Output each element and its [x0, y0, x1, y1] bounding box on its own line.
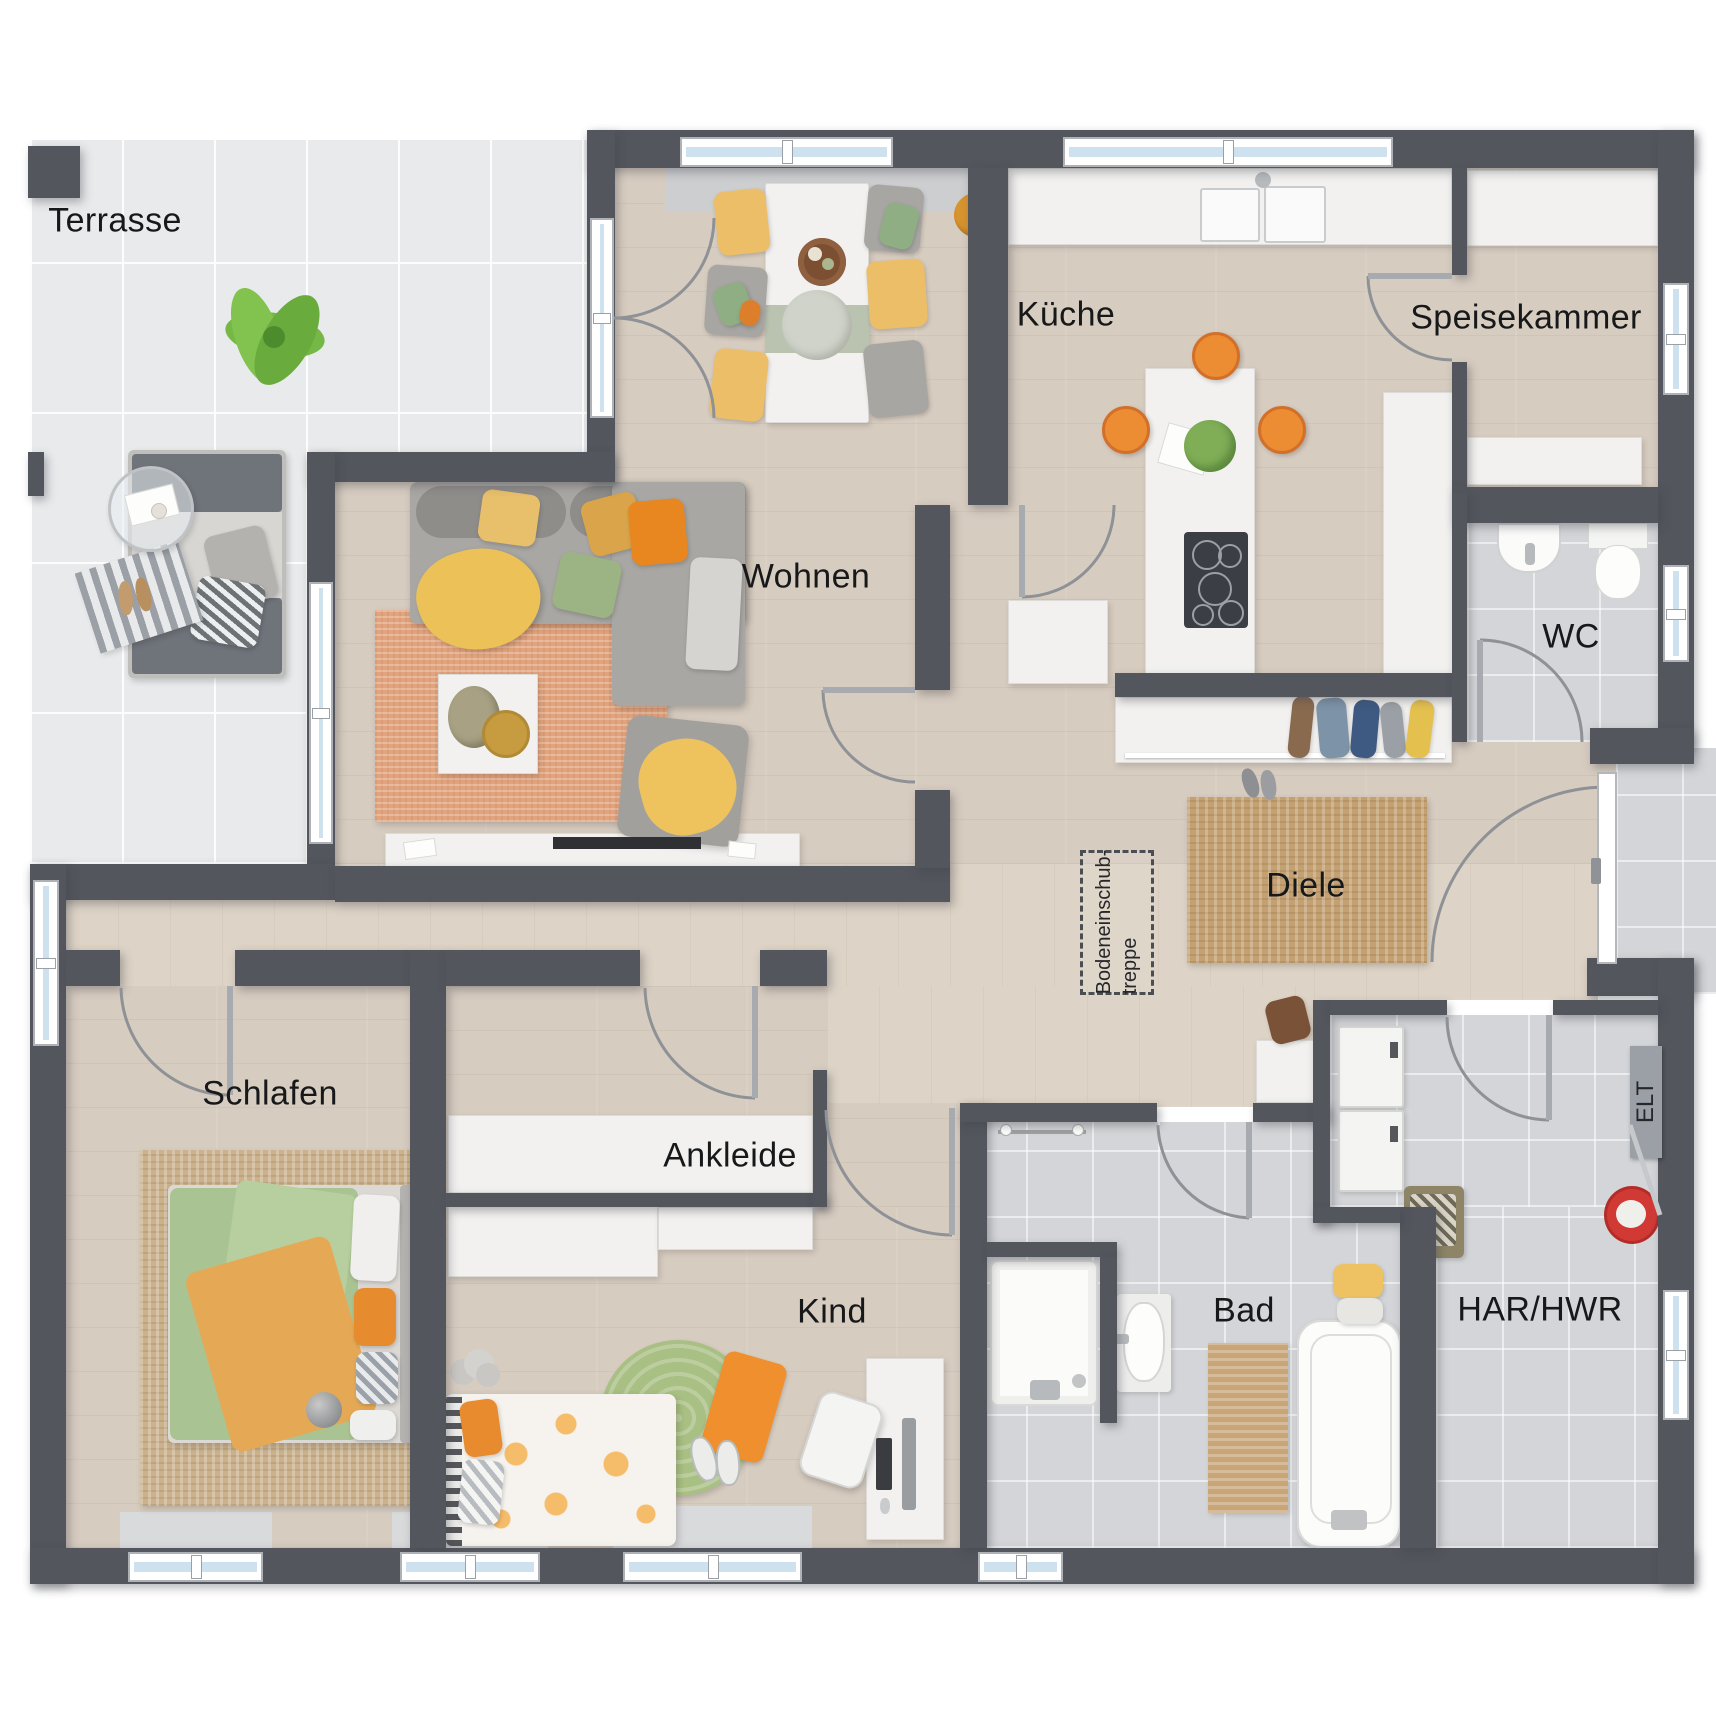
room-label-wc: WC	[1542, 618, 1599, 657]
window	[1663, 283, 1689, 395]
room-label-schlafen: Schlafen	[202, 1075, 338, 1114]
room-label-diele: Diele	[1266, 867, 1345, 906]
window	[680, 137, 893, 167]
room-label-elt: ELT	[1632, 1081, 1660, 1123]
window	[1063, 137, 1393, 167]
floor-plan: Terrasse Küche Speisekammer WC Wohnen Di…	[0, 0, 1716, 1716]
room-label-kueche: Küche	[1017, 296, 1115, 335]
window	[309, 582, 333, 844]
window	[33, 880, 59, 1046]
attic-hatch-label-line1: Bodeneinschub-	[1093, 850, 1115, 995]
room-label-wohnen: Wohnen	[742, 558, 870, 597]
terrace-door	[590, 218, 614, 418]
mop-handle	[1630, 1125, 1660, 1215]
window	[978, 1552, 1063, 1582]
room-label-bad: Bad	[1213, 1292, 1275, 1331]
window	[400, 1552, 540, 1582]
room-label-speisekammer: Speisekammer	[1410, 299, 1642, 338]
door-swing-arcs	[0, 0, 1716, 1716]
entrance-door	[1597, 772, 1617, 964]
window	[1663, 1290, 1689, 1420]
window	[128, 1552, 263, 1582]
attic-hatch-label-line2: treppe	[1119, 938, 1141, 995]
room-label-ankleide: Ankleide	[663, 1137, 797, 1176]
room-label-har-hwr: HAR/HWR	[1457, 1291, 1622, 1330]
window	[623, 1552, 802, 1582]
window	[1663, 565, 1689, 662]
room-label-kind: Kind	[797, 1293, 867, 1332]
room-label-terrasse: Terrasse	[48, 202, 182, 241]
attic-hatch-label: Bodeneinschub- treppe	[1091, 850, 1143, 995]
